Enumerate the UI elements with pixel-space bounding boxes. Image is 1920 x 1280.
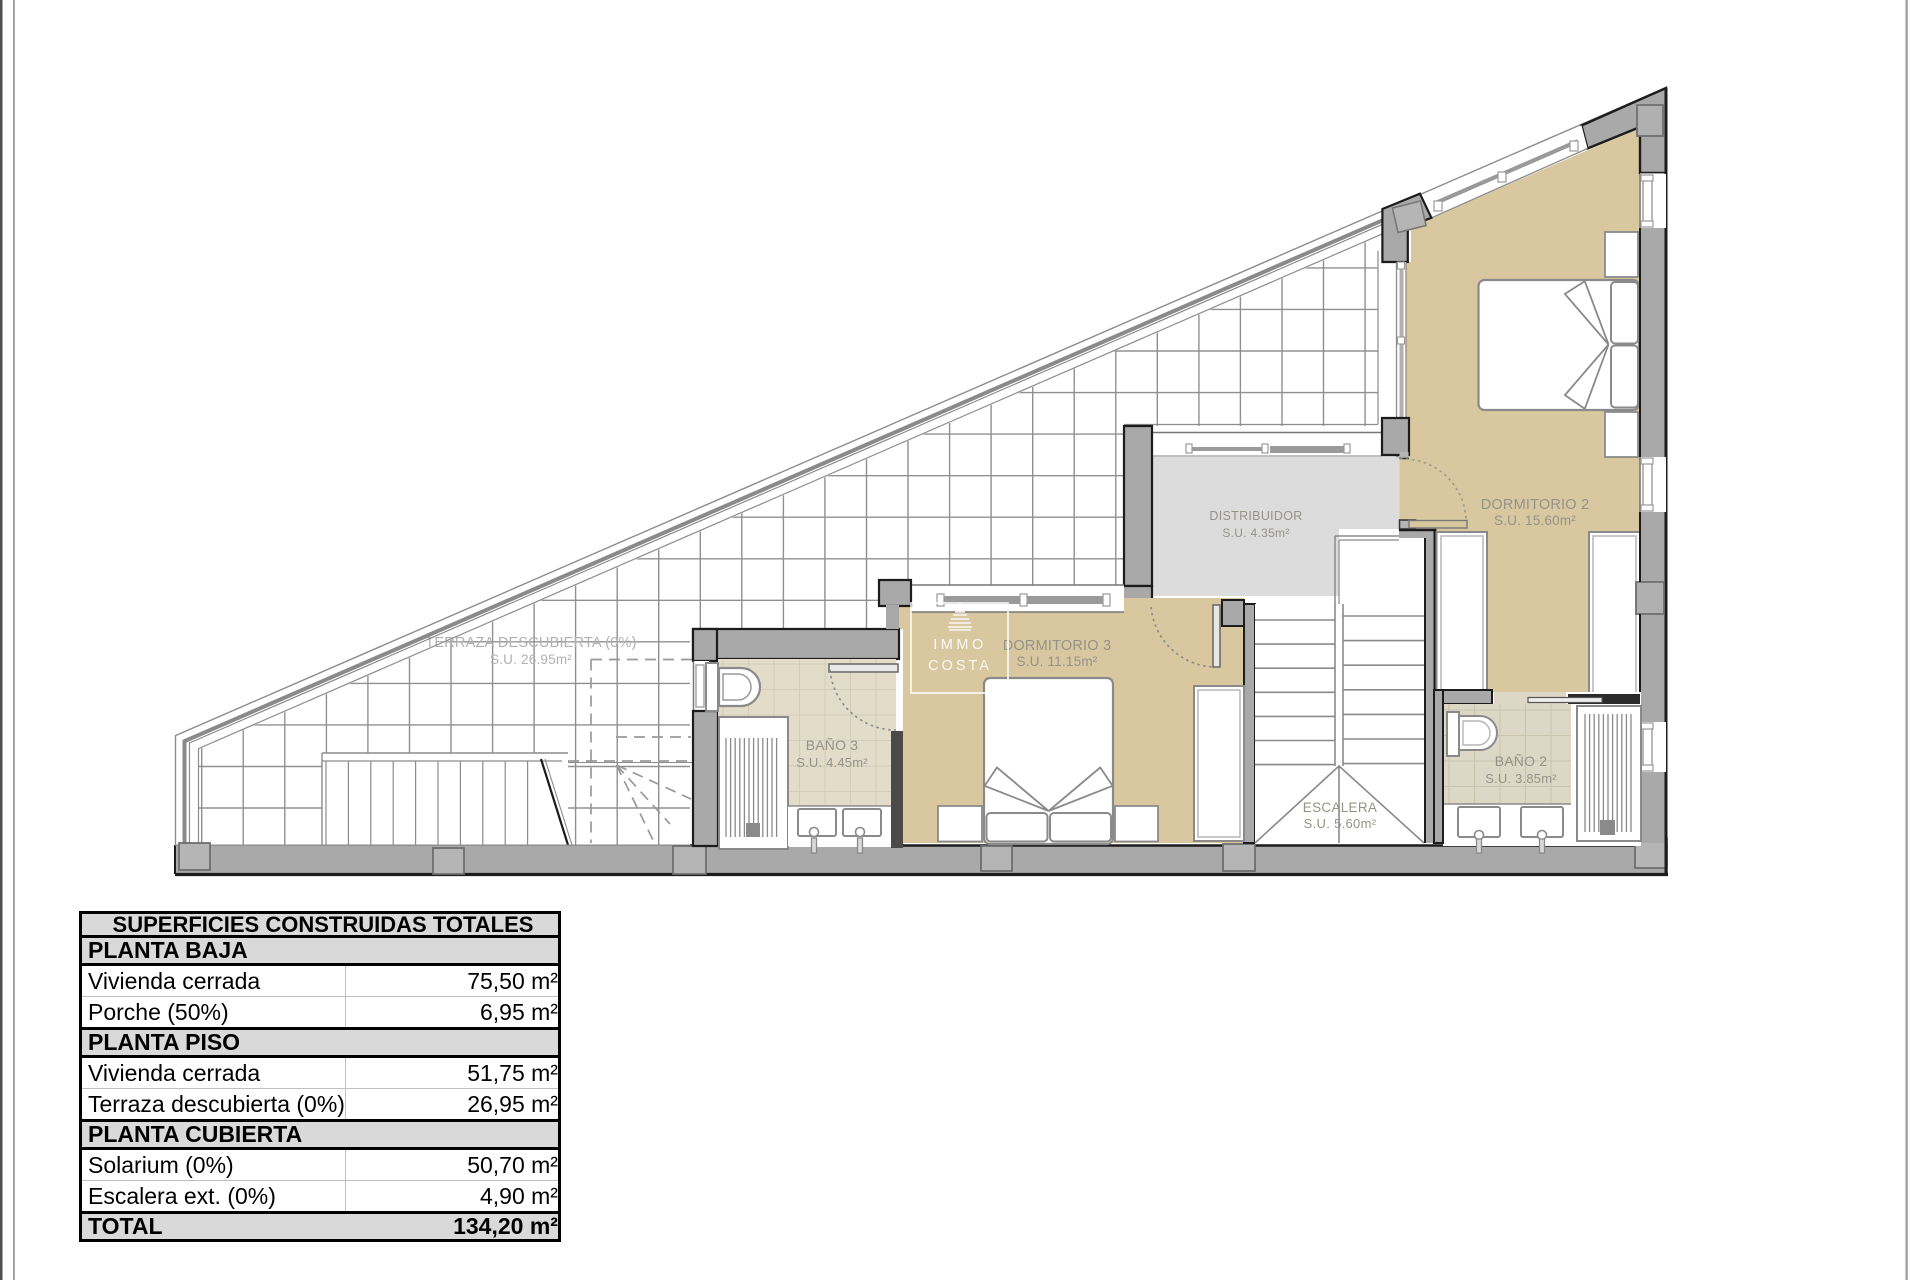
svg-text:DORMITORIO 2: DORMITORIO 2 [1481,497,1589,513]
svg-text:S.U. 4.35m²: S.U. 4.35m² [1222,526,1289,540]
svg-text:DISTRIBUIDOR: DISTRIBUIDOR [1209,509,1302,523]
svg-text:IMMO: IMMO [933,637,986,653]
svg-text:S.U. 5.60m²: S.U. 5.60m² [1304,816,1377,831]
svg-text:S.U. 15.60m²: S.U. 15.60m² [1494,513,1576,528]
svg-text:S.U. 4.45m²: S.U. 4.45m² [796,755,868,770]
svg-text:TERRAZA DESCUBIERTA (0%): TERRAZA DESCUBIERTA (0%) [425,635,636,651]
svg-text:DORMITORIO 3: DORMITORIO 3 [1003,638,1111,654]
svg-text:COSTA: COSTA [928,658,992,674]
svg-text:BAÑO 3: BAÑO 3 [806,737,859,753]
svg-text:BAÑO 2: BAÑO 2 [1495,753,1548,769]
svg-text:S.U. 3.85m²: S.U. 3.85m² [1485,771,1557,786]
svg-text:S.U. 11.15m²: S.U. 11.15m² [1017,654,1098,669]
svg-text:ESCALERA: ESCALERA [1303,800,1377,815]
svg-text:S.U. 26.95m²: S.U. 26.95m² [490,652,572,667]
